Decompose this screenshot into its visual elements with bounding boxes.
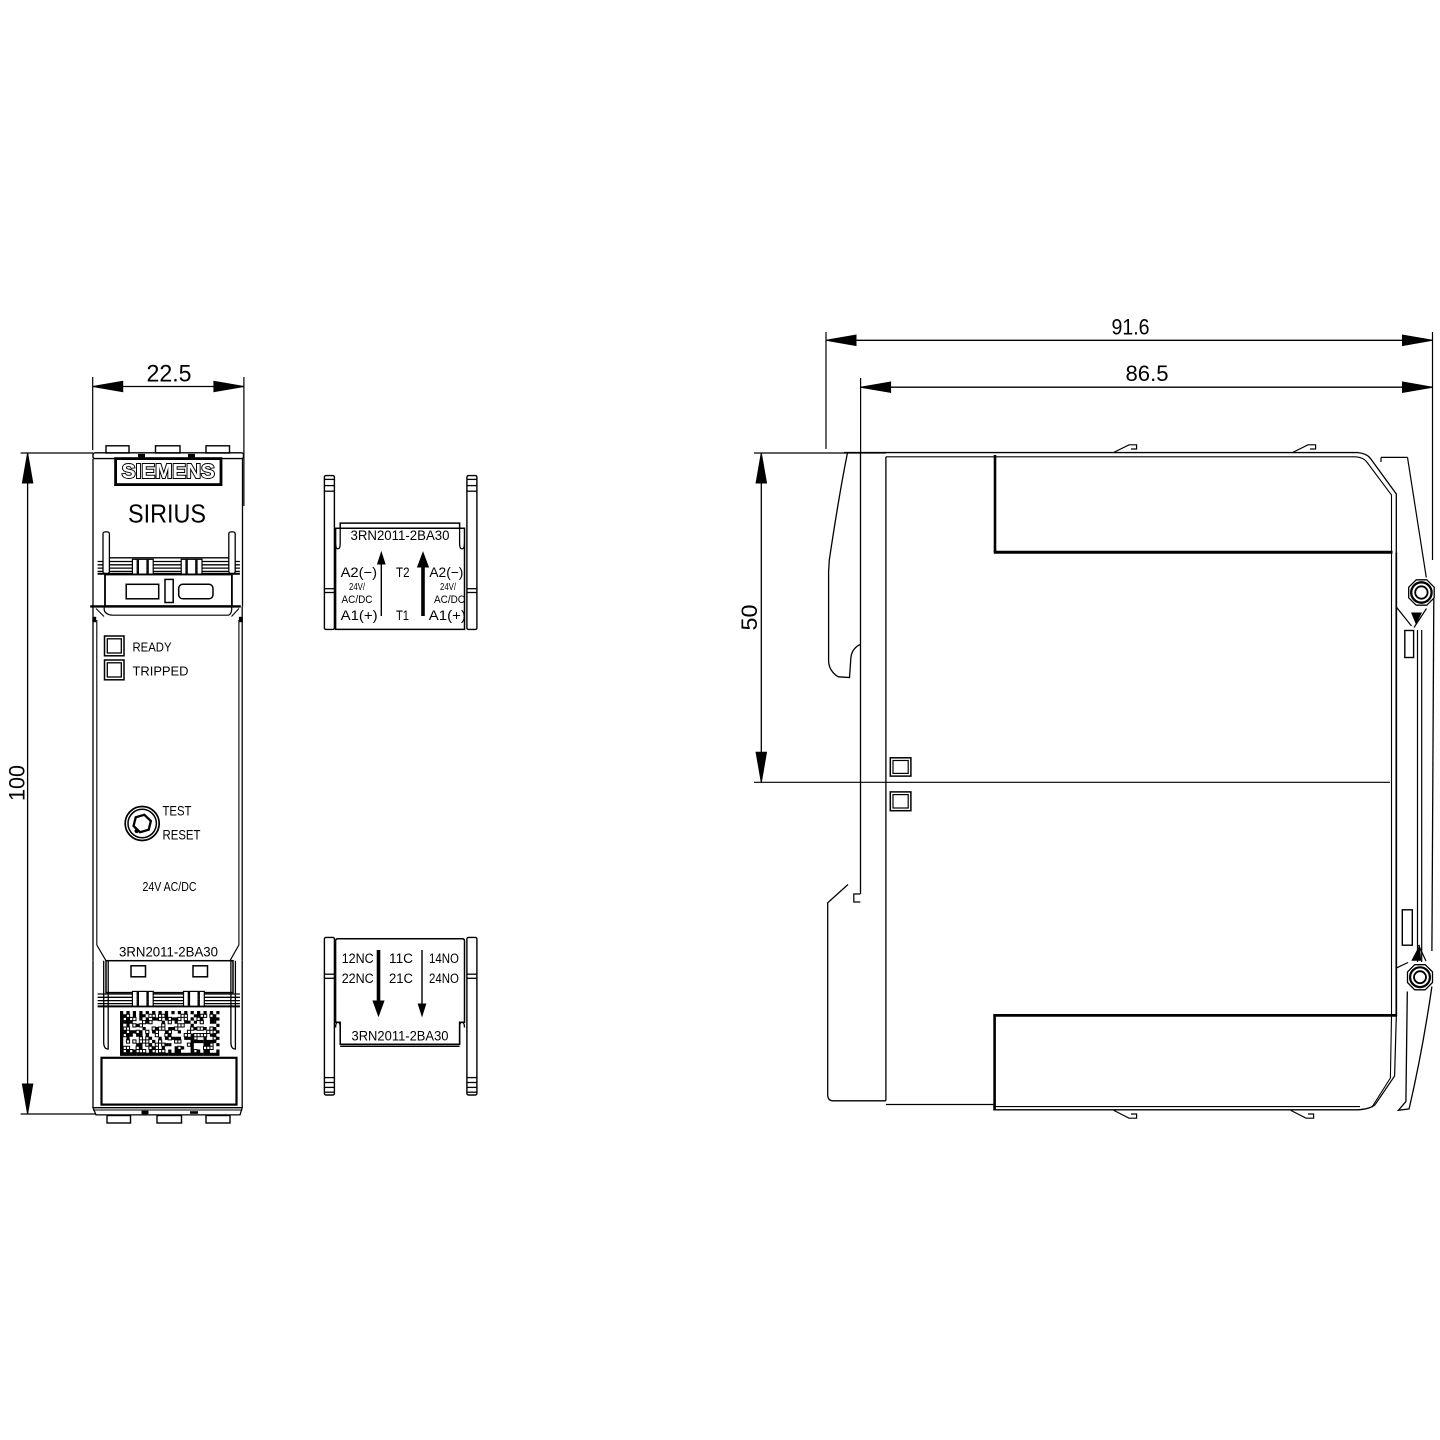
svg-text:24V/: 24V/: [349, 582, 365, 593]
svg-text:RESET: RESET: [163, 828, 201, 843]
svg-text:A1(+): A1(+): [341, 607, 378, 623]
svg-text:50: 50: [737, 605, 762, 631]
svg-text:21C: 21C: [389, 971, 413, 986]
svg-text:3RN2011-2BA30: 3RN2011-2BA30: [352, 1028, 449, 1043]
svg-text:SIRIUS: SIRIUS: [128, 499, 206, 529]
svg-text:24V/: 24V/: [440, 582, 456, 593]
svg-text:AC/DC: AC/DC: [342, 594, 373, 606]
svg-text:READY: READY: [133, 640, 172, 655]
svg-text:A2(−): A2(−): [429, 564, 463, 580]
svg-text:3RN2011-2BA30: 3RN2011-2BA30: [119, 944, 218, 960]
svg-text:SIEMENS: SIEMENS: [122, 461, 215, 483]
svg-text:91.6: 91.6: [1112, 315, 1150, 340]
svg-text:A1(+): A1(+): [429, 607, 466, 623]
svg-text:22NC: 22NC: [342, 971, 374, 986]
svg-text:T2: T2: [396, 564, 410, 580]
svg-text:AC/DC: AC/DC: [434, 594, 465, 606]
svg-text:14NO: 14NO: [429, 951, 459, 966]
svg-text:TRIPPED: TRIPPED: [133, 664, 189, 679]
svg-text:3RN2011-2BA30: 3RN2011-2BA30: [351, 528, 450, 543]
svg-text:86.5: 86.5: [1126, 361, 1169, 386]
svg-text:100: 100: [5, 765, 30, 801]
svg-text:24NO: 24NO: [429, 971, 459, 986]
svg-text:T1: T1: [396, 607, 409, 623]
svg-text:22.5: 22.5: [147, 361, 192, 388]
svg-text:11C: 11C: [389, 951, 413, 966]
svg-text:TEST: TEST: [163, 804, 192, 819]
svg-text:12NC: 12NC: [342, 951, 374, 966]
svg-text:A2(−): A2(−): [341, 564, 378, 580]
svg-text:24V AC/DC: 24V AC/DC: [143, 879, 197, 894]
